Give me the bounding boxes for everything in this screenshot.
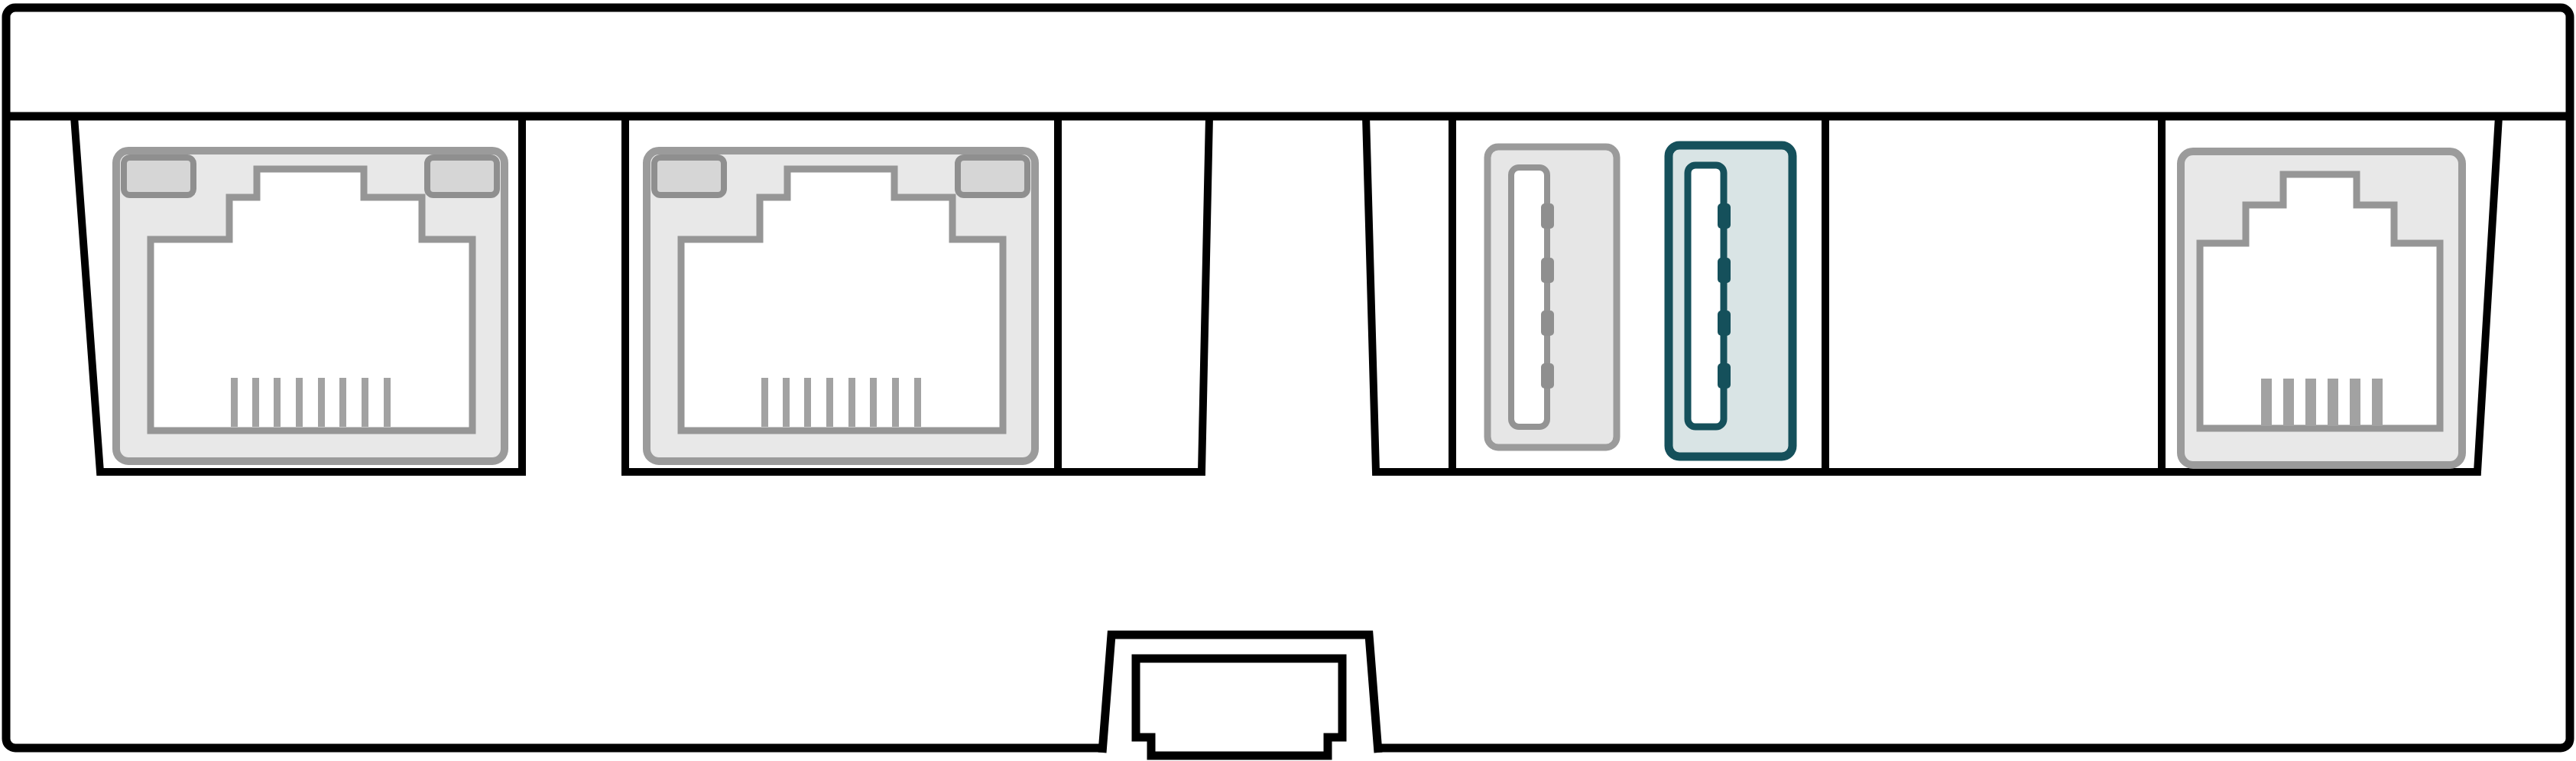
ethernet-port-1: [116, 151, 504, 461]
usb-contact: [1718, 363, 1731, 389]
pin: [914, 378, 921, 427]
pin: [892, 378, 899, 427]
rear-panel-svg: [0, 0, 2576, 761]
bottom-expansion-connector: [1102, 635, 1378, 756]
pin: [2261, 379, 2272, 426]
pin: [2350, 379, 2360, 426]
usb-contact: [1541, 311, 1554, 336]
pin: [761, 378, 768, 427]
rear-panel-diagram: [0, 0, 2576, 761]
bottom-connector-body: [1136, 659, 1342, 756]
pin: [231, 378, 238, 427]
pin: [296, 378, 303, 427]
pin: [804, 378, 811, 427]
pin: [384, 378, 391, 427]
console-port: [2181, 151, 2462, 465]
led-window-right: [427, 158, 497, 195]
led-window-left: [124, 158, 193, 195]
usb-port-highlighted-slot: [1688, 165, 1724, 427]
pin: [274, 378, 281, 427]
usb-port-standard-body: [1488, 147, 1617, 447]
pin: [2372, 379, 2383, 426]
usb-port-standard: [1488, 147, 1617, 447]
pin: [870, 378, 877, 427]
led-window-left: [654, 158, 724, 195]
pin: [318, 378, 325, 427]
pin: [2328, 379, 2338, 426]
pin: [339, 378, 346, 427]
led-window-right: [958, 158, 1027, 195]
usb-contact: [1541, 258, 1554, 283]
usb-contact: [1718, 258, 1731, 283]
pin: [252, 378, 259, 427]
usb-contact: [1541, 203, 1554, 229]
pin: [848, 378, 855, 427]
pin: [783, 378, 790, 427]
pin: [2305, 379, 2316, 426]
usb-contact: [1718, 203, 1731, 229]
usb-contact: [1541, 363, 1554, 389]
pin: [826, 378, 833, 427]
usb-port-highlighted: [1669, 145, 1792, 457]
pin: [362, 378, 368, 427]
ethernet-port-2: [647, 151, 1035, 461]
usb-contact: [1718, 311, 1731, 336]
pin: [2283, 379, 2294, 426]
